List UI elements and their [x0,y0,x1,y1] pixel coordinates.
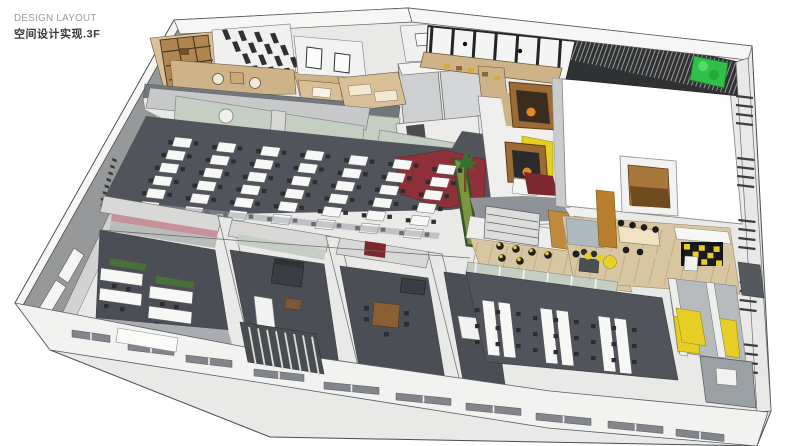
svg-text:空间设计实现.3F: 空间设计实现.3F [14,27,100,41]
svg-text:DESIGN LAYOUT: DESIGN LAYOUT [14,13,97,24]
